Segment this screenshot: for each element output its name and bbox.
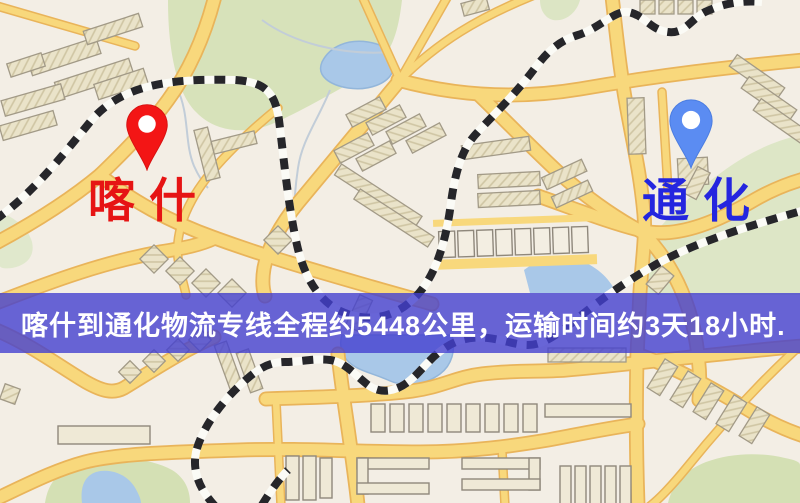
origin-city-label: 喀什 xyxy=(88,177,210,224)
destination-pin-shape xyxy=(670,100,712,168)
route-info-banner: 喀什到通化物流专线全程约5448公里，运输时间约3天18小时. xyxy=(0,293,800,353)
origin-pin-icon xyxy=(120,101,174,171)
route-info-text: 喀什到通化物流专线全程约5448公里，运输时间约3天18小时. xyxy=(0,304,786,343)
origin-pin-shape xyxy=(127,105,168,170)
logistics-route-map-image: 喀什 通化 喀什到通化物流专线全程约5448公里，运输时间约3天18小时. xyxy=(0,0,800,503)
destination-city-label: 通化 xyxy=(642,177,764,224)
destination-pin-icon xyxy=(664,96,718,169)
map-background xyxy=(0,0,800,503)
